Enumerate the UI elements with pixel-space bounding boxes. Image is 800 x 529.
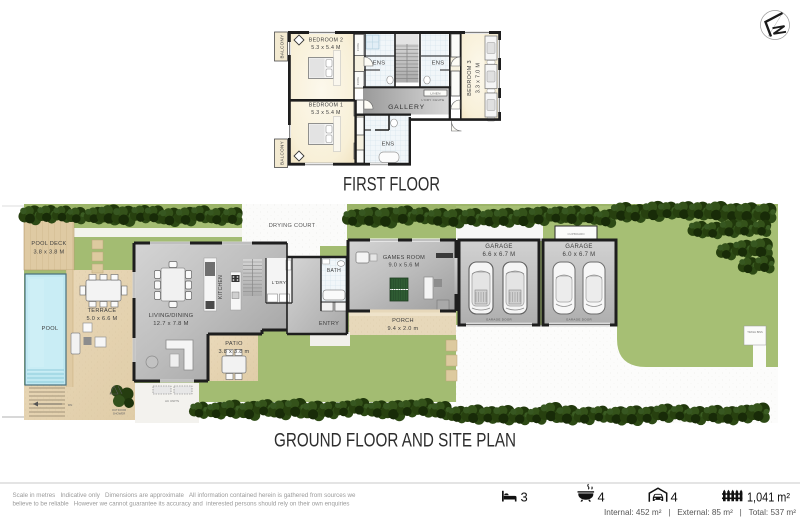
svg-text:4: 4 xyxy=(671,490,678,505)
svg-text:Scale in metres Indicative o: Scale in metres Indicative only Dimensio… xyxy=(13,492,356,499)
svg-text:PORCH: PORCH xyxy=(392,318,414,324)
svg-text:GARAGE DOOR: GARAGE DOOR xyxy=(486,318,513,322)
svg-text:DRYING COURT: DRYING COURT xyxy=(269,223,316,229)
svg-text:GROUND FLOOR AND SITE PLAN: GROUND FLOOR AND SITE PLAN xyxy=(274,430,516,452)
svg-text:1,041 m²: 1,041 m² xyxy=(747,490,791,505)
svg-text:9.4 x 2.0 m: 9.4 x 2.0 m xyxy=(388,326,419,332)
svg-text:L'DRY CHUTE: L'DRY CHUTE xyxy=(422,98,445,102)
svg-text:PATIO: PATIO xyxy=(225,341,243,347)
svg-text:5.0 x 6.6 M: 5.0 x 6.6 M xyxy=(87,316,118,322)
svg-text:BEDROOM 3: BEDROOM 3 xyxy=(467,60,473,96)
svg-text:ROBE: ROBE xyxy=(356,77,360,86)
svg-text:BATH: BATH xyxy=(327,268,341,274)
svg-text:Internal: 452 m² | Externa: Internal: 452 m² | External: 85 m² | Tot… xyxy=(604,508,796,517)
svg-text:GAMES ROOM: GAMES ROOM xyxy=(383,255,425,261)
svg-text:DN: DN xyxy=(68,403,72,407)
svg-text:ENS: ENS xyxy=(382,142,395,148)
svg-text:3.3 x 7.0 M: 3.3 x 7.0 M xyxy=(476,63,482,94)
svg-text:AC UNITS: AC UNITS xyxy=(165,399,179,403)
svg-text:ROBE: ROBE xyxy=(356,43,360,52)
svg-text:believe to be reliable Howev: believe to be reliable However we cannot… xyxy=(13,501,351,508)
svg-text:FIRST FLOOR: FIRST FLOOR xyxy=(343,174,440,196)
svg-text:5.3 x 5.4 M: 5.3 x 5.4 M xyxy=(311,45,341,51)
svg-text:LINEN: LINEN xyxy=(430,92,440,96)
svg-text:6.0 x 6.7 M: 6.0 x 6.7 M xyxy=(563,252,596,258)
svg-text:POOL: POOL xyxy=(42,326,59,332)
svg-text:ENS: ENS xyxy=(432,61,445,67)
svg-text:GARAGE: GARAGE xyxy=(565,244,592,250)
svg-text:3.8 x 3.8 M: 3.8 x 3.8 M xyxy=(34,250,65,256)
svg-text:3: 3 xyxy=(521,490,528,505)
svg-text:4: 4 xyxy=(598,490,605,505)
svg-text:12.7 x 7.8 M: 12.7 x 7.8 M xyxy=(153,321,189,327)
svg-text:SHOWER: SHOWER xyxy=(113,412,126,416)
svg-text:POOL DECK: POOL DECK xyxy=(31,241,66,247)
svg-text:L'DRY: L'DRY xyxy=(272,280,287,285)
svg-text:GARAGE: GARAGE xyxy=(485,244,512,250)
svg-text:BEDROOM 2: BEDROOM 2 xyxy=(309,38,344,44)
svg-text:KITCHEN: KITCHEN xyxy=(218,275,224,299)
svg-text:3.8 x 3.8 m: 3.8 x 3.8 m xyxy=(219,349,250,355)
svg-text:BALCONY: BALCONY xyxy=(280,141,285,165)
svg-text:ENS: ENS xyxy=(373,61,386,67)
svg-text:9.0 x 5.6 M: 9.0 x 5.6 M xyxy=(389,263,420,269)
svg-text:TERRACE: TERRACE xyxy=(88,308,117,314)
svg-text:6.6 x 6.7 M: 6.6 x 6.7 M xyxy=(483,252,516,258)
svg-text:LIVING/DINING: LIVING/DINING xyxy=(149,313,194,319)
svg-text:BALCONY: BALCONY xyxy=(280,34,285,58)
svg-text:GARAGE DOOR: GARAGE DOOR xyxy=(566,318,593,322)
svg-text:GALLERY: GALLERY xyxy=(388,104,425,111)
svg-text:BEDROOM 1: BEDROOM 1 xyxy=(309,103,344,109)
svg-text:5.3 x 5.4 M: 5.3 x 5.4 M xyxy=(311,110,341,116)
svg-text:CUPBOARD: CUPBOARD xyxy=(567,232,585,236)
svg-text:ENTRY: ENTRY xyxy=(319,321,339,327)
svg-text:TRASH BINS: TRASH BINS xyxy=(747,330,763,334)
